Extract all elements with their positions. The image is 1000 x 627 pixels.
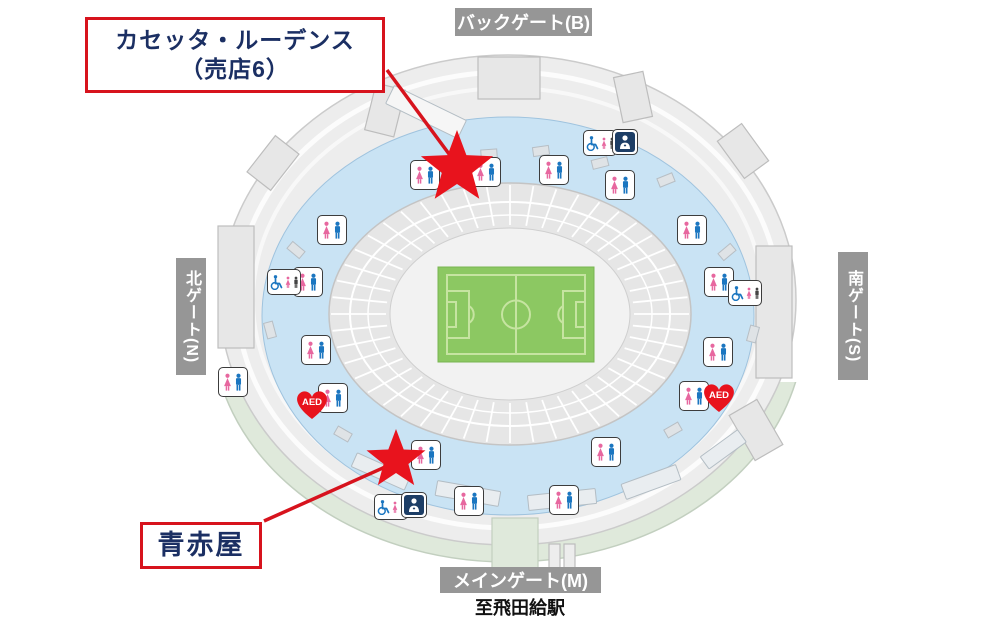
callout-aoakaya-name: 青赤屋 [158, 529, 245, 563]
callout-shop6-name: カセッタ・ルーデンス [115, 26, 355, 55]
callout-aoakaya: 青赤屋 [140, 522, 262, 569]
stadium-guide-map: AED AED カセッタ・ルーデンス （売店6） 青赤屋 バックゲート(B) メ… [0, 0, 1000, 627]
main-gate-label: メインゲート(M) [440, 567, 601, 593]
soccer-field [438, 267, 594, 362]
back-gate-label: バックゲート(B) [455, 8, 592, 36]
callout-shop6-sub: （売店6） [180, 55, 290, 84]
main-gate-walkway [492, 518, 538, 572]
south-gate-label: 南ゲート(S) [838, 252, 868, 380]
station-direction-label: 至飛田給駅 [450, 594, 590, 620]
callout-shop6: カセッタ・ルーデンス （売店6） [85, 17, 385, 93]
north-gate-label: 北ゲート(N) [176, 258, 206, 375]
